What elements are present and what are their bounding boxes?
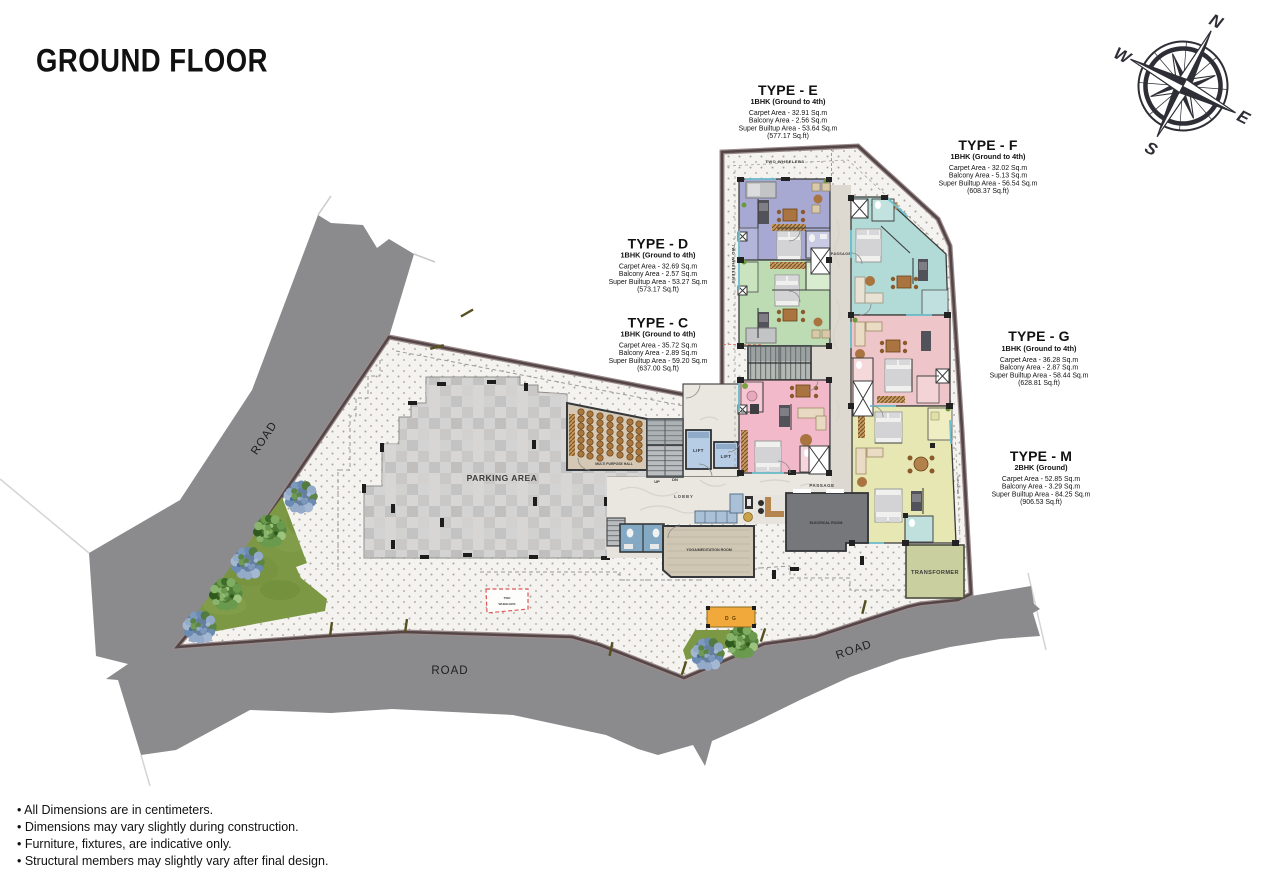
svg-text:PARKING AREA: PARKING AREA [467,473,538,483]
svg-text:ELECRICAL ROOM: ELECRICAL ROOM [810,521,843,525]
svg-text:TYPE - E: TYPE - E [758,82,818,98]
svg-text:MULTI PURPOSE HALL: MULTI PURPOSE HALL [595,462,633,466]
svg-text:1BHK (Ground to 4th): 1BHK (Ground to 4th) [751,97,827,106]
svg-text:• All Dimensions are in centim: • All Dimensions are in centimeters. [17,803,213,817]
svg-text:Super Builtup Area - 84.25 Sq.: Super Builtup Area - 84.25 Sq.m [992,491,1091,498]
svg-text:TYPE - G: TYPE - G [1008,328,1070,344]
svg-text:ROAD: ROAD [431,665,468,677]
svg-text:LOBBY: LOBBY [674,494,694,499]
svg-text:Super Builtup Area - 53.64 Sq.: Super Builtup Area - 53.64 Sq.m [739,125,838,132]
svg-text:(906.53 Sq.ft): (906.53 Sq.ft) [1020,499,1062,506]
svg-text:TYPE - M: TYPE - M [1010,448,1072,464]
svg-text:1BHK (Ground to 4th): 1BHK (Ground to 4th) [621,251,697,260]
svg-text:Carpet Area - 35.72 Sq.m: Carpet Area - 35.72 Sq.m [619,343,697,350]
svg-text:D G: D G [725,616,737,622]
svg-text:• Structural members may sligh: • Structural members may slightly vary a… [17,854,328,868]
svg-text:GROUND FLOOR: GROUND FLOOR [36,43,268,79]
svg-text:(608.37 Sq.ft): (608.37 Sq.ft) [967,188,1009,195]
svg-text:Balcony Area - 2.87 Sq.m: Balcony Area - 2.87 Sq.m [1000,365,1078,372]
svg-text:2BHK (Ground): 2BHK (Ground) [1014,463,1068,472]
svg-text:UP: UP [654,479,660,484]
svg-text:TWO: TWO [504,596,512,600]
svg-text:Carpet Area - 32.02 Sq.m: Carpet Area - 32.02 Sq.m [949,165,1027,172]
svg-text:Super Builtup Area - 56.54 Sq.: Super Builtup Area - 56.54 Sq.m [939,180,1038,187]
svg-text:(577.17 Sq.ft): (577.17 Sq.ft) [767,133,809,140]
svg-text:PASSAGE: PASSAGE [809,483,834,488]
svg-text:SUBSTATION: SUBSTATION [956,476,960,495]
svg-text:Carpet Area - 52.85 Sq.m: Carpet Area - 52.85 Sq.m [1002,476,1080,483]
svg-text:(573.17 Sq.ft): (573.17 Sq.ft) [637,287,679,294]
svg-text:TRANSFORMER: TRANSFORMER [911,570,959,576]
svg-text:Super Builtup Area - 53.27 Sq.: Super Builtup Area - 53.27 Sq.m [609,279,708,286]
svg-text:TWO WHEELERS: TWO WHEELERS [731,244,736,283]
svg-text:LIFT: LIFT [693,448,704,453]
svg-text:Carpet Area - 36.28 Sq.m: Carpet Area - 36.28 Sq.m [1000,357,1078,364]
svg-text:1BHK (Ground to 4th): 1BHK (Ground to 4th) [621,330,697,339]
svg-text:1BHK (Ground to 4th): 1BHK (Ground to 4th) [1002,344,1078,353]
svg-text:WHEELERS: WHEELERS [498,602,515,606]
svg-text:Balcony Area - 2.56 Sq.m: Balcony Area - 2.56 Sq.m [749,118,827,125]
svg-text:TWO WHEELERS: TWO WHEELERS [765,159,804,164]
svg-text:LIFT: LIFT [721,454,732,459]
svg-text:PASSAGE: PASSAGE [831,252,852,256]
svg-text:• Dimensions may vary slightly: • Dimensions may vary slightly during co… [17,820,299,834]
svg-text:Balcony Area - 2.57 Sq.m: Balcony Area - 2.57 Sq.m [619,271,697,278]
svg-text:Balcony Area - 3.29 Sq.m: Balcony Area - 3.29 Sq.m [1002,484,1080,491]
svg-text:Super Builtup Area - 58.44 Sq.: Super Builtup Area - 58.44 Sq.m [990,372,1089,379]
svg-text:TYPE - D: TYPE - D [628,236,689,252]
svg-text:Balcony Area - 5.13 Sq.m: Balcony Area - 5.13 Sq.m [949,173,1027,180]
svg-text:Balcony Area - 2.89 Sq.m: Balcony Area - 2.89 Sq.m [619,350,697,357]
svg-text:1BHK (Ground to 4th): 1BHK (Ground to 4th) [951,152,1027,161]
svg-text:TYPE - C: TYPE - C [628,315,689,331]
svg-text:(637.00 Sq.ft): (637.00 Sq.ft) [637,366,679,373]
svg-text:Super Builtup Area - 59.20 Sq.: Super Builtup Area - 59.20 Sq.m [609,358,708,365]
svg-text:TYPE - F: TYPE - F [958,137,1017,153]
svg-text:• Furniture, fixtures, are ind: • Furniture, fixtures, are indicative on… [17,837,232,851]
svg-text:Carpet Area - 32.69 Sq.m: Carpet Area - 32.69 Sq.m [619,264,697,271]
svg-text:Carpet Area - 32.91 Sq.m: Carpet Area - 32.91 Sq.m [749,110,827,117]
svg-text:DN: DN [672,477,678,482]
svg-text:(628.81 Sq.ft): (628.81 Sq.ft) [1018,380,1060,387]
svg-text:YOGA/MEDITATION ROOM: YOGA/MEDITATION ROOM [686,548,732,552]
